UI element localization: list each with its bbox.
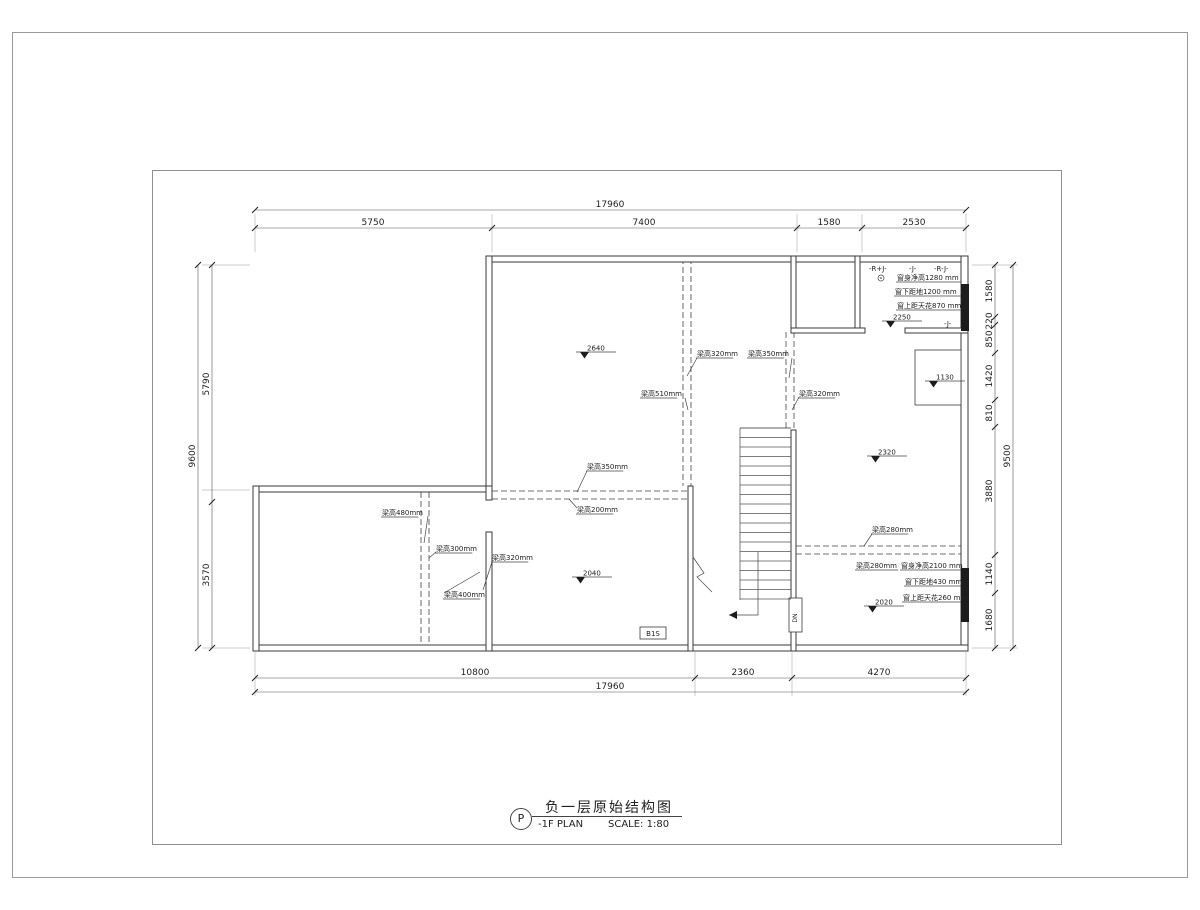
axis-tag: -R+J- [869, 265, 887, 273]
axis-tag: -J- [944, 320, 952, 328]
wall [253, 486, 259, 651]
beam-label-leader [429, 552, 436, 558]
dimension-label: 1140 [985, 562, 995, 585]
wall [855, 256, 860, 332]
dimension-label: 3880 [985, 479, 995, 502]
level-marker-triangle [868, 606, 877, 613]
dimension-label: 7400 [633, 218, 656, 228]
wall [791, 256, 796, 332]
beam-label-leader [685, 398, 688, 410]
beam-height-label: 梁高350mm [748, 349, 789, 358]
level-value: 2320 [878, 449, 896, 457]
beam-label-leader [789, 358, 792, 378]
beam-label-leader [569, 499, 577, 508]
dimension-label: 850 [985, 330, 995, 347]
dimension-label: 4270 [868, 668, 891, 678]
dimension-label: 1580 [818, 218, 841, 228]
beam-height-label: 梁高320mm [799, 389, 840, 398]
drawing-sheet: 1796057507400158025301080023604270179609… [0, 0, 1200, 910]
beam-height-label: 梁高280mm [872, 525, 913, 534]
dimension-label: 10800 [461, 668, 490, 678]
level-value: 2250 [893, 314, 911, 322]
beam-height-label: 梁高200mm [577, 505, 618, 514]
beam-height-label: 梁高320mm [697, 349, 738, 358]
axis-tag: -R-J- [934, 265, 949, 273]
beam-height-label: 梁高510mm [641, 389, 682, 398]
dimension-label: 2530 [903, 218, 926, 228]
beam-height-label: 梁高300mm [436, 544, 477, 553]
room-label: B1S [646, 630, 660, 638]
window-fill [961, 284, 969, 331]
stair-down-label: DN [792, 613, 799, 622]
wall [253, 645, 968, 651]
dimension-label: 17960 [596, 200, 625, 210]
wall [905, 328, 968, 333]
window-note: 窗身净高1280 mm [897, 273, 959, 282]
stair-arrow-head [729, 611, 737, 619]
dimension-label: 1680 [985, 608, 995, 631]
window-note: 窗上距天花870 mm [897, 301, 961, 310]
wall [486, 256, 492, 492]
beam-label-leader [687, 358, 697, 376]
beam-height-label: 梁高350mm [587, 462, 628, 471]
wall [791, 328, 865, 333]
wall [486, 532, 492, 651]
axis-tag: -J- [909, 265, 917, 273]
level-marker-triangle [886, 321, 895, 328]
wall [253, 486, 492, 492]
plan-title-en: -1F PLAN [538, 819, 583, 830]
wall [688, 486, 693, 651]
dimension-label: 5750 [362, 218, 385, 228]
dimension-label: 220 [985, 312, 995, 329]
plan-code-badge: P [510, 808, 532, 830]
window-note: 窗下距地430 mm [905, 577, 962, 586]
beam-height-label: 梁高480mm [382, 508, 423, 517]
window-note: 窗下距地1200 mm [895, 287, 957, 296]
title-block: P 负一层原始结构图 -1F PLAN SCALE: 1:80 [510, 800, 690, 836]
wall [488, 256, 968, 262]
beam-label-leader [864, 534, 872, 546]
level-value: 1130 [936, 374, 954, 382]
dimension-label: 9600 [188, 444, 198, 467]
level-marker-triangle [580, 352, 589, 359]
stair-direction-arrow [729, 552, 758, 615]
dimension-label: 17960 [596, 682, 625, 692]
plan-title-cn: 负一层原始结构图 [536, 797, 682, 817]
dimension-label: 1420 [985, 364, 995, 387]
title-underline [532, 816, 682, 817]
level-marker-triangle [576, 577, 585, 584]
dimension-label: 2360 [732, 668, 755, 678]
level-value: 2040 [583, 570, 601, 578]
level-value: 2640 [587, 345, 605, 353]
beam-label-leader [444, 572, 480, 593]
fixture-symbol-dot [880, 277, 882, 279]
beam-label-leader [577, 471, 587, 492]
beam-height-label: 梁高400mm [444, 590, 485, 599]
plan-scale-label: SCALE: 1:80 [608, 819, 669, 830]
beam-label-leader [792, 397, 799, 410]
dimension-label: 1580 [985, 279, 995, 302]
dimension-label: 810 [985, 404, 995, 421]
dimension-label: 5790 [202, 372, 212, 395]
wall [486, 486, 492, 500]
dimension-label: 9500 [1003, 444, 1013, 467]
dimension-label: 3570 [202, 563, 212, 586]
beam-label-leader [424, 516, 428, 543]
window-note: 窗上距天花260 mm [903, 593, 967, 602]
window-note: 梁高280mm [856, 561, 897, 570]
level-marker-triangle [871, 456, 880, 463]
floor-plan-drawing: 1796057507400158025301080023604270179609… [0, 0, 1200, 910]
beam-height-label: 梁高320mm [492, 553, 533, 562]
break-line [693, 557, 712, 592]
level-value: 2020 [875, 599, 893, 607]
window-note: 窗身净高2100 mm [901, 561, 963, 570]
